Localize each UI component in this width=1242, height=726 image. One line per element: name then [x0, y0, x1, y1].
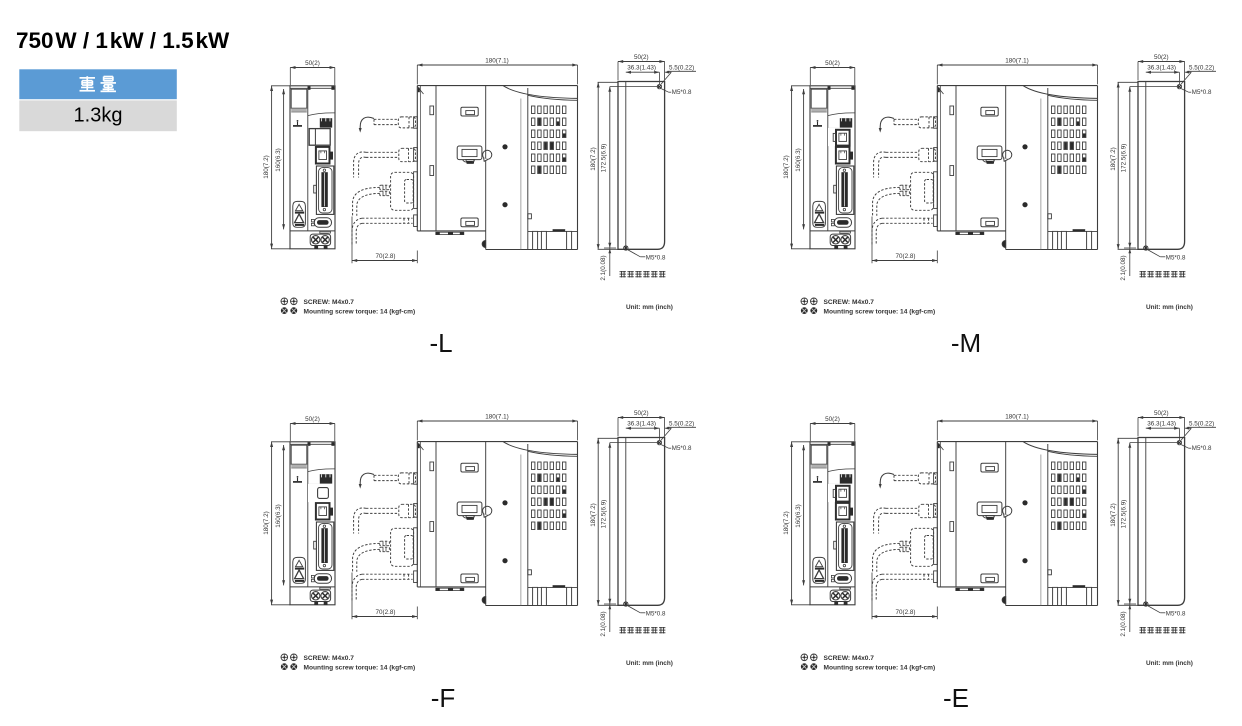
svg-text:-F: -F	[431, 683, 456, 713]
svg-text:1.3kg: 1.3kg	[74, 105, 123, 127]
svg-text:-L: -L	[429, 328, 452, 358]
svg-text:-M: -M	[951, 328, 981, 358]
svg-text:-E: -E	[943, 683, 969, 713]
